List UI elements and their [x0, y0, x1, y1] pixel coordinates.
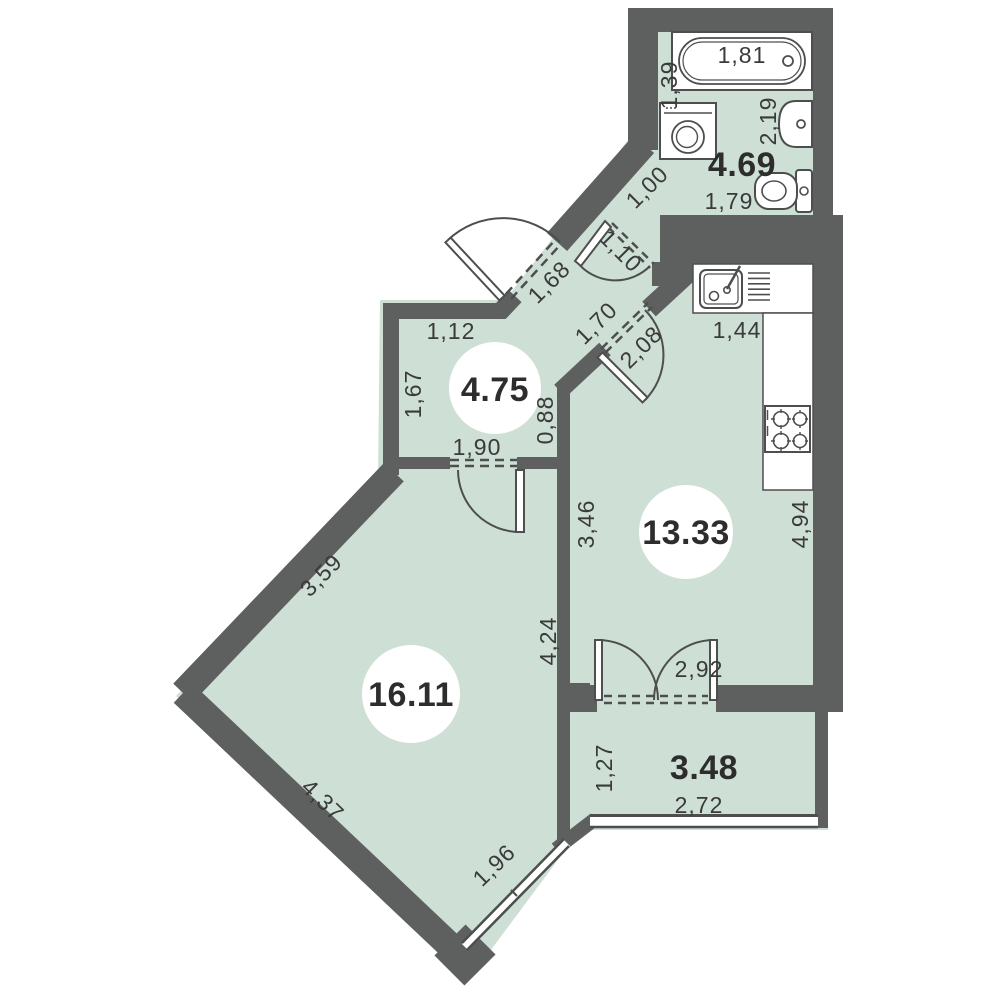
dim-label: 1,12 [427, 318, 476, 344]
dim-label: 2,72 [675, 792, 724, 818]
door-swing-arc [448, 218, 560, 242]
room-area-label-kitchen: 13.33 [642, 514, 730, 552]
door-leaf [595, 640, 602, 700]
room-area-label-bathroom: 4.69 [708, 146, 776, 184]
dim-label: 3,46 [573, 500, 599, 549]
door-leaf [516, 470, 524, 532]
sink-bowl [779, 101, 812, 147]
room-area-label-hallway: 4.75 [461, 371, 529, 409]
floor-plan: 1,81 1,39 2,19 4.69 1,79 1,00 1,10 1,68 … [0, 0, 1000, 1000]
dim-label: 1,39 [656, 61, 682, 110]
toilet-tank [796, 170, 812, 212]
bathroom-sink-icon [779, 101, 812, 147]
dim-label: 1,44 [713, 317, 762, 343]
dim-label: 2,92 [675, 656, 724, 682]
dim-label: 1,81 [718, 42, 767, 68]
dim-label: 1,27 [591, 744, 617, 793]
room-area-label-living-room: 16.11 [368, 676, 454, 714]
room-area-label-balcony: 3.48 [670, 749, 738, 787]
door-leaf [445, 238, 504, 301]
counter-side [763, 313, 813, 490]
dim-label: 2,19 [755, 97, 781, 146]
dim-label: 4,94 [787, 500, 813, 549]
dim-label: 0,88 [532, 396, 558, 445]
dim-label: 1,79 [705, 188, 754, 214]
sink-drain [710, 292, 719, 301]
dim-label: 4,24 [535, 617, 561, 666]
bathtub-drain [783, 56, 793, 66]
dim-label: 1,90 [453, 434, 502, 460]
dim-label: 1,67 [400, 370, 426, 419]
floor-plan-svg: 1,81 1,39 2,19 4.69 1,79 1,00 1,10 1,68 … [0, 0, 1000, 1000]
